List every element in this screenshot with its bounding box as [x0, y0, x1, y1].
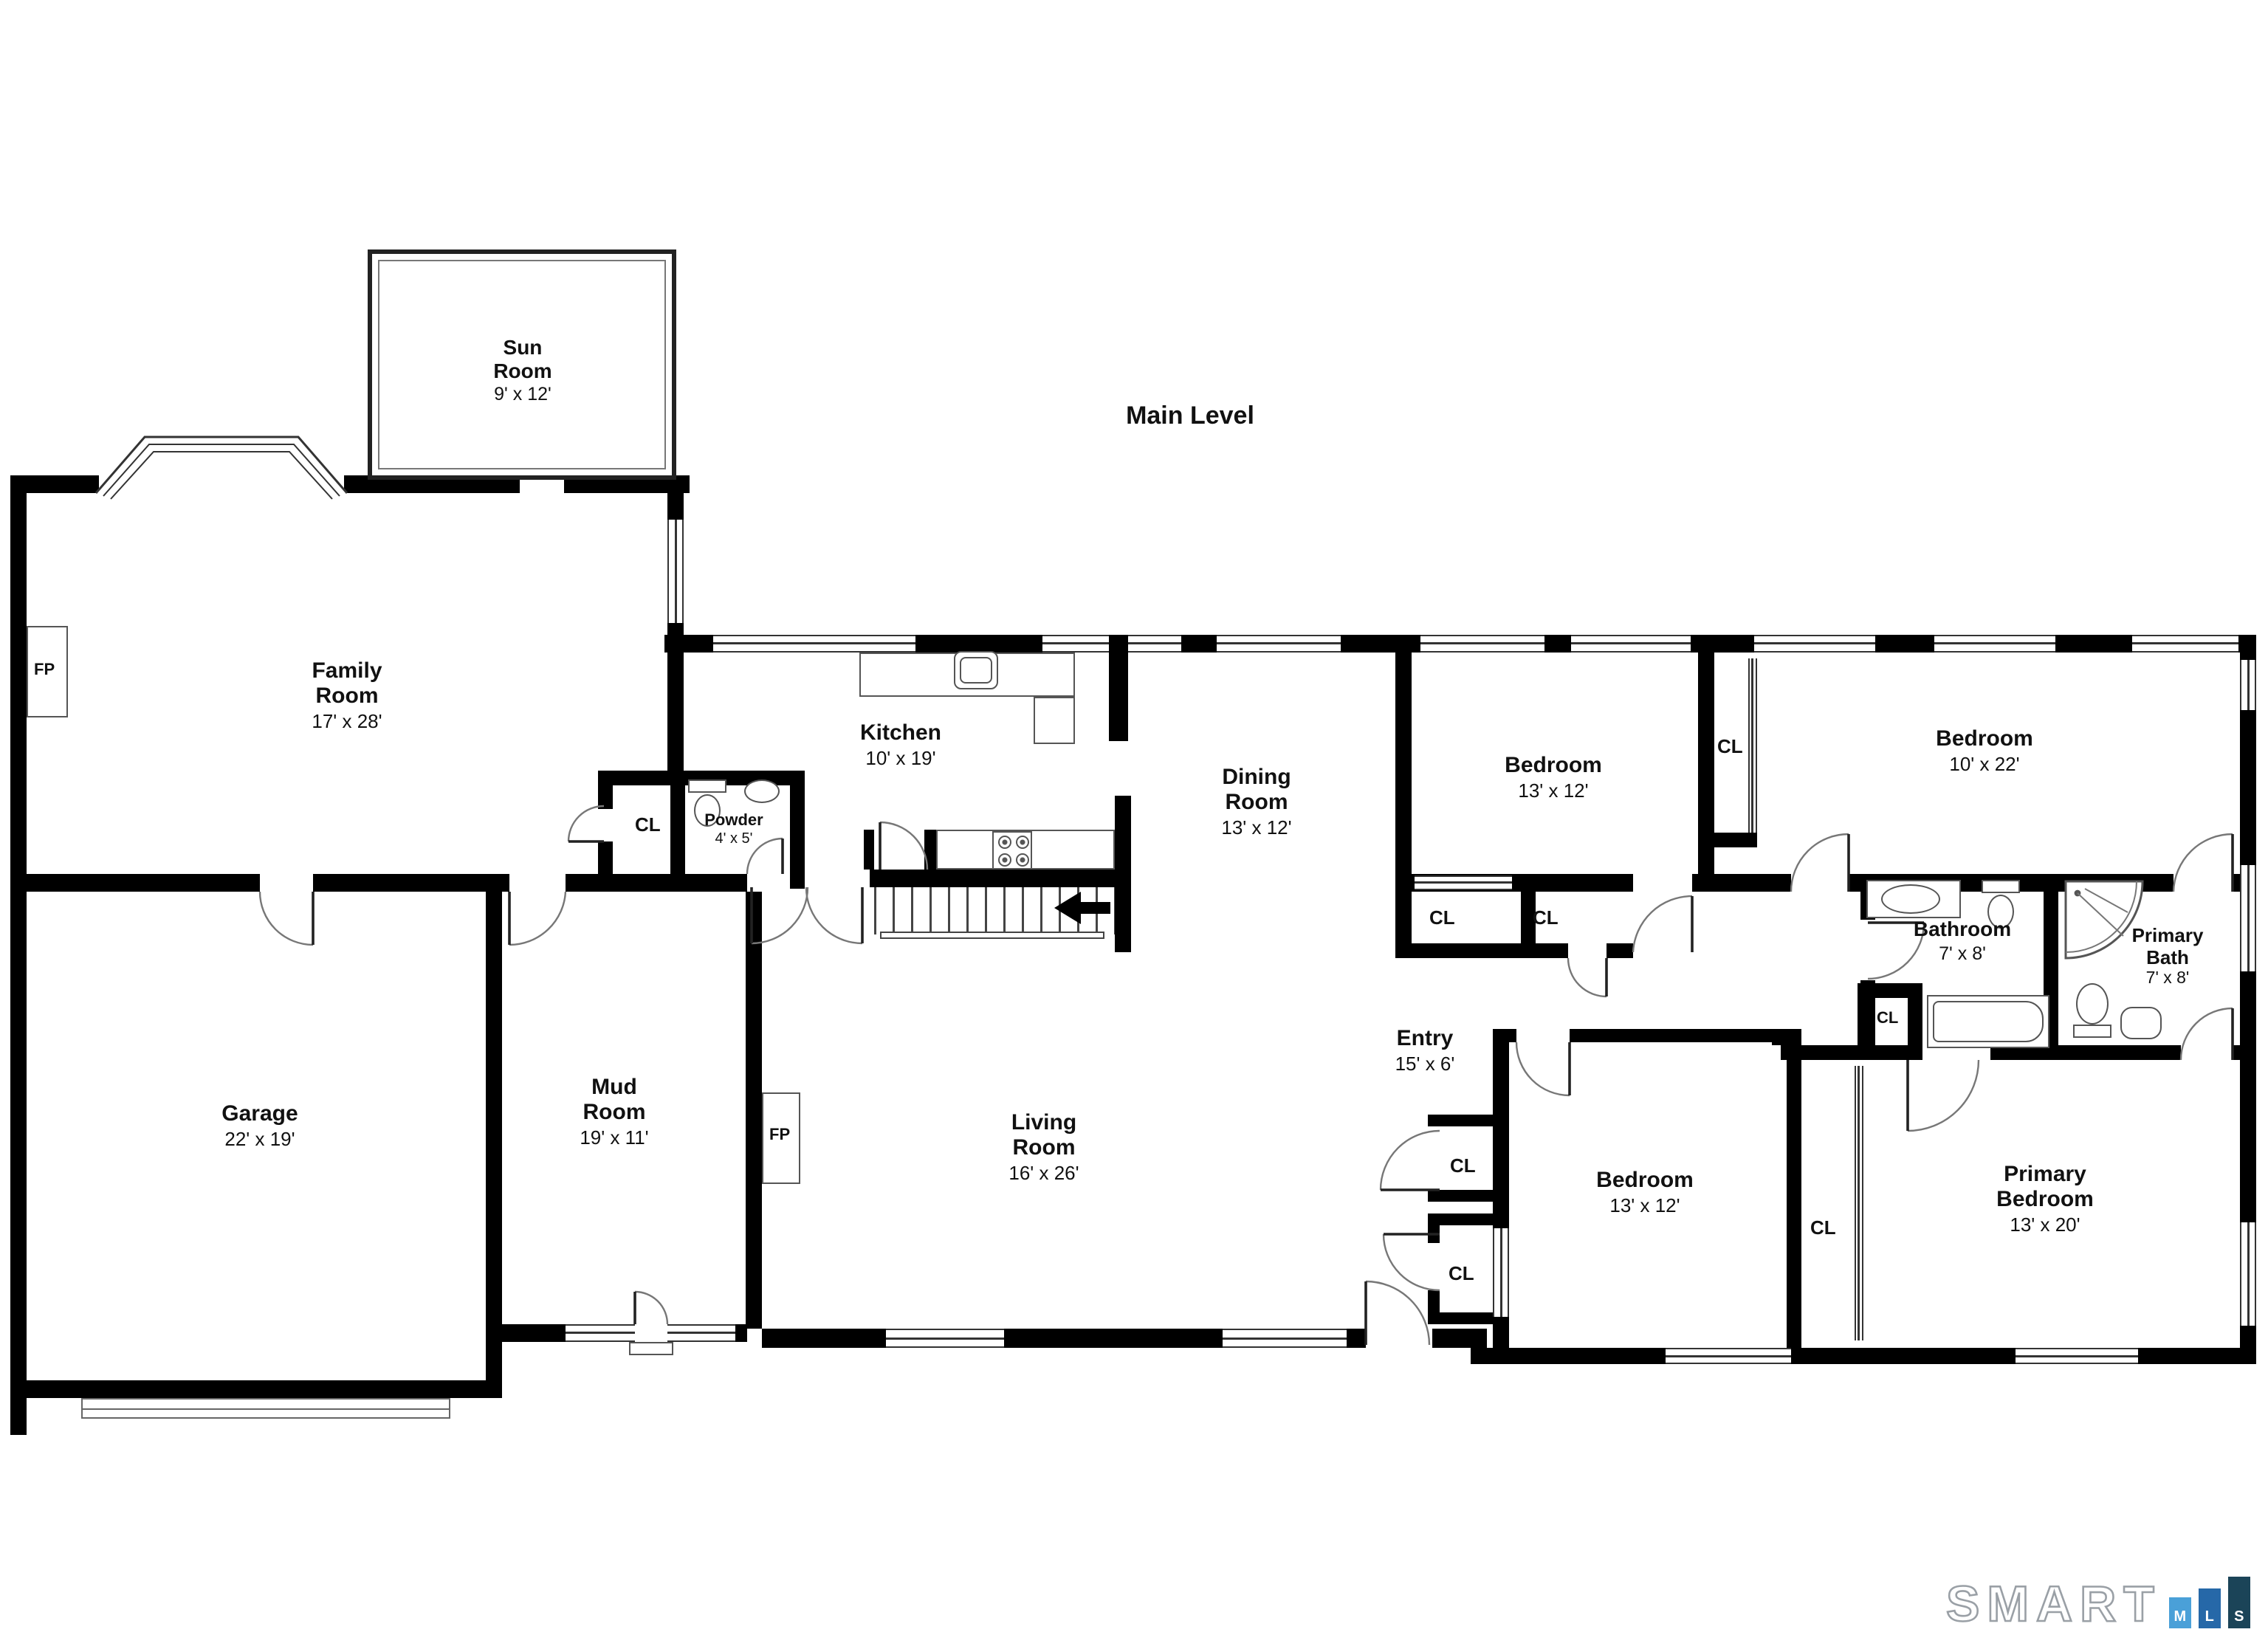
room-label-sun-room: Sun Room 9' x 12'	[481, 337, 564, 405]
closet-label: CL	[1877, 1010, 1898, 1027]
room-label-entry: Entry 15' x 6'	[1366, 1027, 1484, 1075]
room-label-garage: Garage 22' x 19'	[186, 1103, 334, 1151]
logo-wordmark: SMART	[1946, 1580, 2162, 1628]
closet-label: CL	[1717, 735, 1743, 757]
bay-window	[96, 437, 347, 499]
room-label-living-room: Living Room 16' x 26'	[1003, 1112, 1085, 1184]
fireplace-label: FP	[769, 1126, 790, 1144]
logo-bar-m: M	[2169, 1597, 2191, 1628]
closet-label: CL	[1449, 1262, 1474, 1284]
room-label-kitchen: Kitchen 10' x 19'	[812, 722, 989, 770]
floor-plan: Main Level Sun Room 9' x 12' Family Room…	[0, 0, 2268, 1649]
room-label-family-room: Family Room 17' x 28'	[295, 660, 399, 732]
logo-bar-s: S	[2228, 1577, 2250, 1628]
room-label-bedroom-top: Bedroom 13' x 12'	[1472, 754, 1635, 802]
room-label-mud-room: Mud Room 19' x 11'	[577, 1076, 651, 1149]
closet-label: CL	[1810, 1216, 1836, 1239]
closet-label: CL	[635, 813, 661, 836]
closet-label: CL	[1450, 1154, 1476, 1177]
room-label-bathroom: Bathroom 7' x 8'	[1889, 918, 2036, 963]
room-label-dining-room: Dining Room 13' x 12'	[1205, 766, 1308, 839]
smartmls-logo: SMART M L S	[1946, 1577, 2250, 1628]
closet-label: CL	[1429, 906, 1455, 929]
fireplace-label: FP	[34, 661, 55, 679]
room-label-powder: Powder 4' x 5'	[682, 812, 786, 848]
page-title: Main Level	[1072, 402, 1308, 431]
room-label-primary-bath: Primary Bath 7' x 8'	[2123, 926, 2212, 989]
closet-label: CL	[1533, 906, 1559, 929]
logo-bar-l: L	[2199, 1588, 2221, 1628]
stairs-direction-arrow-icon	[1054, 892, 1110, 924]
room-label-primary-bedroom: Primary Bedroom 13' x 20'	[1986, 1163, 2104, 1236]
doors-and-fixtures-layer	[0, 0, 2268, 1649]
door-swing-arcs	[260, 806, 2233, 1345]
room-label-bedroom-bottom: Bedroom 13' x 12'	[1564, 1169, 1726, 1217]
room-label-bedroom-right: Bedroom 10' x 22'	[1903, 728, 2066, 776]
